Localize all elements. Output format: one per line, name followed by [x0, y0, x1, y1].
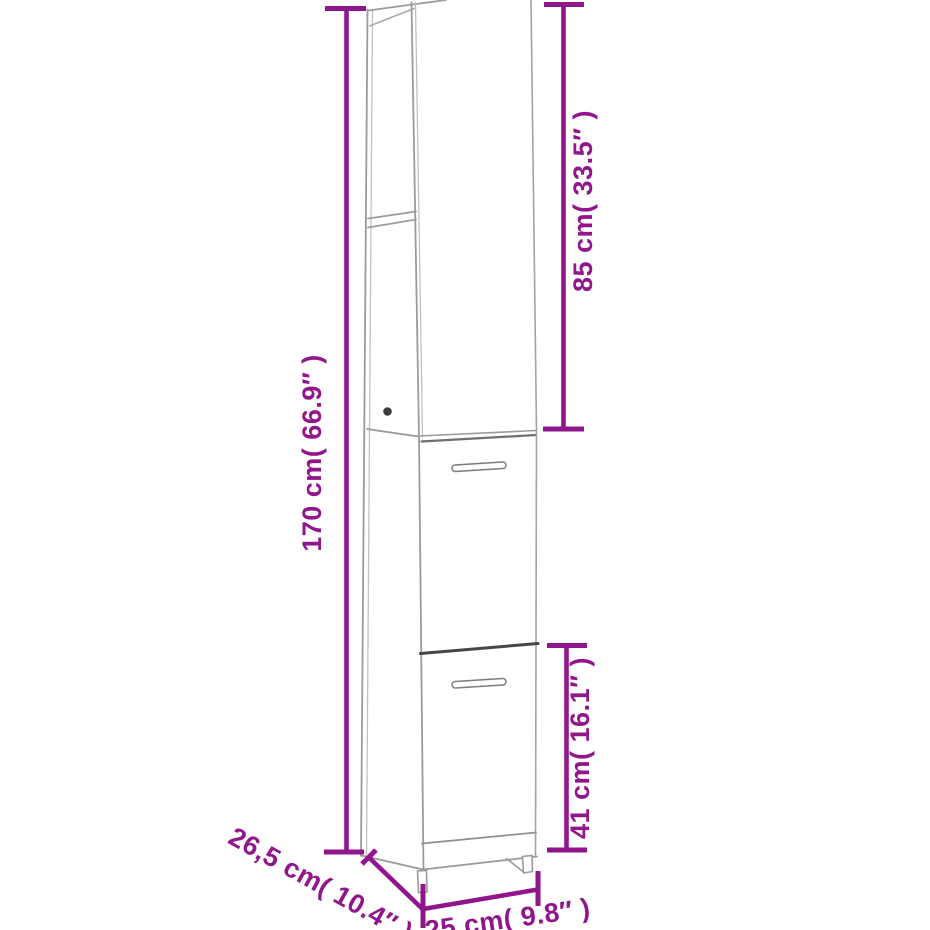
- dimension-labels: 170 cm( 66.9″ ) 85 cm( 33.5″ ) 41 cm( 16…: [224, 110, 598, 930]
- upper-door-top-gap: [422, 435, 537, 442]
- cabinet-front-right-edge-upper: [531, 0, 537, 430]
- dimension-total-height: [324, 8, 366, 852]
- right-foot: [523, 856, 533, 874]
- cabinet-top-underside: [370, 9, 415, 27]
- door-divider-gap: [421, 644, 539, 654]
- lower-door-label: 41 cm( 16.1″ ): [565, 657, 595, 839]
- cabinet-top-edge: [368, 0, 446, 11]
- upper-section-label: 85 cm( 33.5″ ): [568, 110, 598, 292]
- shelf-front-edge: [368, 212, 416, 219]
- upper-section-bottom-diagonal: [367, 429, 419, 437]
- lower-door-handle: [452, 678, 506, 688]
- right-foot-brace: [507, 859, 523, 872]
- lower-door-bottom-edge: [422, 833, 536, 844]
- keyhole-dot: [383, 407, 392, 416]
- upper-door-handle: [452, 462, 506, 472]
- product-dimension-diagram: 170 cm( 66.9″ ) 85 cm( 33.5″ ) 41 cm( 16…: [0, 0, 930, 930]
- cabinet-bottom-front-edge: [423, 857, 537, 870]
- cabinet-back-left-edge: [361, 10, 368, 857]
- diagram-canvas: 170 cm( 66.9″ ) 85 cm( 33.5″ ) 41 cm( 16…: [0, 0, 930, 930]
- total-height-label: 170 cm( 66.9″ ): [297, 354, 327, 552]
- cabinet-drawing: [361, 0, 538, 893]
- width-label: 25 cm( 9.8″ ): [423, 893, 592, 930]
- shelf-bottom-edge: [368, 220, 416, 228]
